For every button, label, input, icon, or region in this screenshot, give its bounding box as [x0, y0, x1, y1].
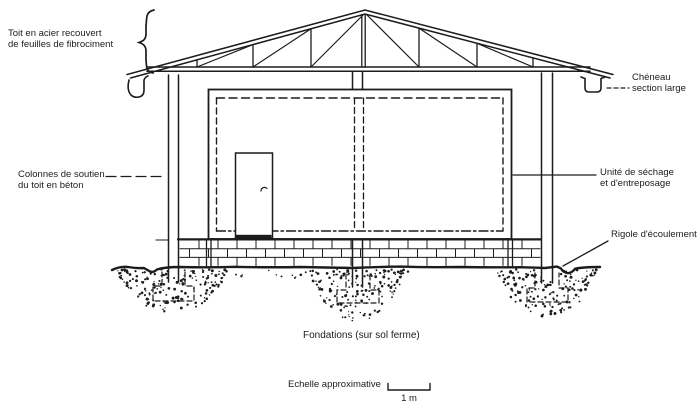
gutter-left-icon: [128, 76, 148, 97]
foundations: [117, 268, 597, 321]
door: [236, 153, 273, 239]
column-left: [169, 75, 179, 282]
drying-unit-label: Unité de séchage et d'entreposage: [600, 167, 674, 189]
technical-diagram: Toit en acier recouvert de feuilles de f…: [0, 0, 700, 410]
drain-label: Rigole d'écoulement: [611, 229, 697, 240]
scale-value: 1 m: [394, 393, 424, 404]
leader-lines: [106, 10, 629, 266]
support-columns-label: Colonnes de soutien du toit en béton: [18, 169, 105, 191]
scale-bar: [388, 384, 430, 391]
drain-leader: [563, 241, 608, 266]
gutter-label: Chéneau section large: [632, 72, 686, 94]
roof-label-brace: [139, 10, 154, 73]
brick-base-wall: [156, 239, 541, 265]
soil-stipple: [117, 268, 597, 321]
roof-material-label: Toit en acier recouvert de feuilles de f…: [8, 28, 113, 50]
foundations-caption: Fondations (sur sol ferme): [303, 330, 420, 341]
scale-caption: Echelle approximative: [288, 379, 381, 390]
column-right: [542, 73, 553, 283]
gutter-right-icon: [581, 77, 605, 92]
roof-sheet: [127, 10, 613, 78]
building-section-drawing: [0, 0, 700, 410]
roof-truss: [147, 15, 590, 72]
